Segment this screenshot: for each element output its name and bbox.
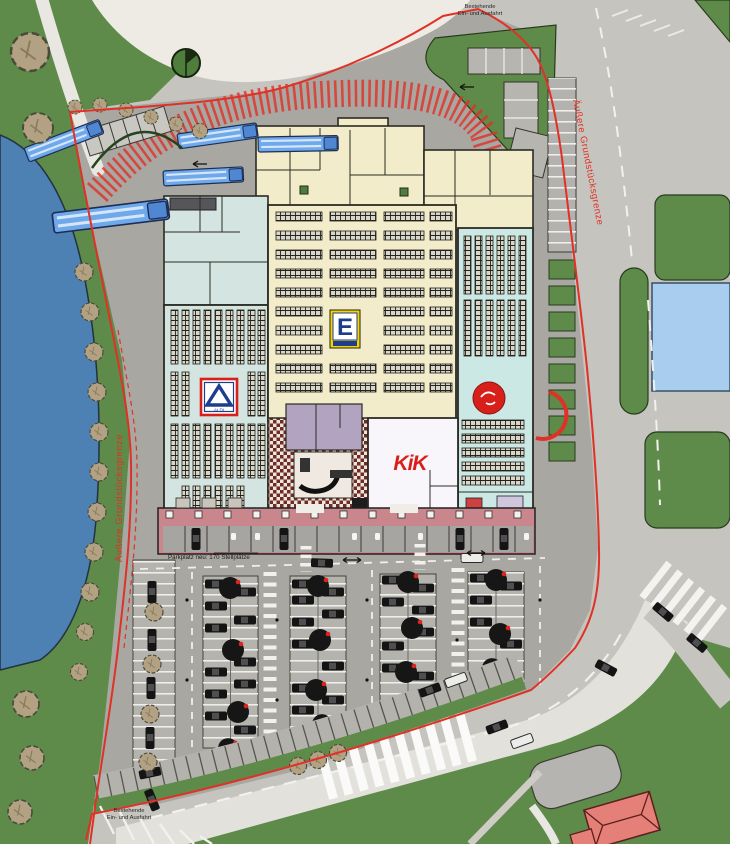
checkout-counters: [176, 498, 242, 508]
building-drugstore: [458, 228, 533, 520]
entrance-top-line1: Bestehende: [465, 4, 496, 10]
retention-basin: [652, 283, 730, 391]
truck: [258, 136, 338, 152]
store-kik: KiK: [368, 418, 458, 512]
edeka-logo-text: E: [337, 314, 353, 341]
aldi-logo: ALDI: [201, 379, 237, 415]
parking-note-text: Parkplatz neu: 170 Stellplätze: [168, 554, 250, 561]
entrance-gap: [390, 504, 418, 513]
site-plan-drawing: ALDI E: [0, 0, 730, 844]
parking-note: Parkplatz neu: 170 Stellplätze: [168, 553, 258, 561]
kik-logo-text: KiK: [393, 452, 429, 475]
entrance-bottom-line2: Ein- und Ausfahrt: [107, 815, 152, 821]
aldi-logo-text: ALDI: [214, 408, 224, 413]
car-on-aisle: [311, 558, 333, 568]
front-stalls: [163, 526, 533, 552]
plant-box: [300, 186, 308, 194]
loading-dock: [170, 198, 216, 210]
building-aldi: ALDI: [164, 196, 268, 520]
colonnade: [158, 504, 535, 554]
parking-island-2: [290, 575, 346, 734]
car-on-aisle: [461, 554, 483, 563]
sector-tree: [172, 49, 200, 77]
plant-box: [400, 188, 408, 196]
site-plan-page: ALDI E: [0, 0, 730, 844]
entrance-bottom-line1: Bestehende: [114, 808, 145, 814]
traffic-median: [620, 268, 648, 414]
edeka-logo: E: [330, 310, 360, 348]
store-logo-red-circle: [473, 382, 505, 414]
boundary-label-left: Äußere Grundstücksgrenze: [114, 434, 125, 562]
mall-entrance: [268, 404, 368, 512]
parking-island-1: [203, 576, 258, 758]
building-edeka: E: [268, 205, 456, 420]
entrance-gap: [296, 504, 324, 513]
entrance-top-line2: Ein- und Ausfahrt: [458, 11, 503, 17]
